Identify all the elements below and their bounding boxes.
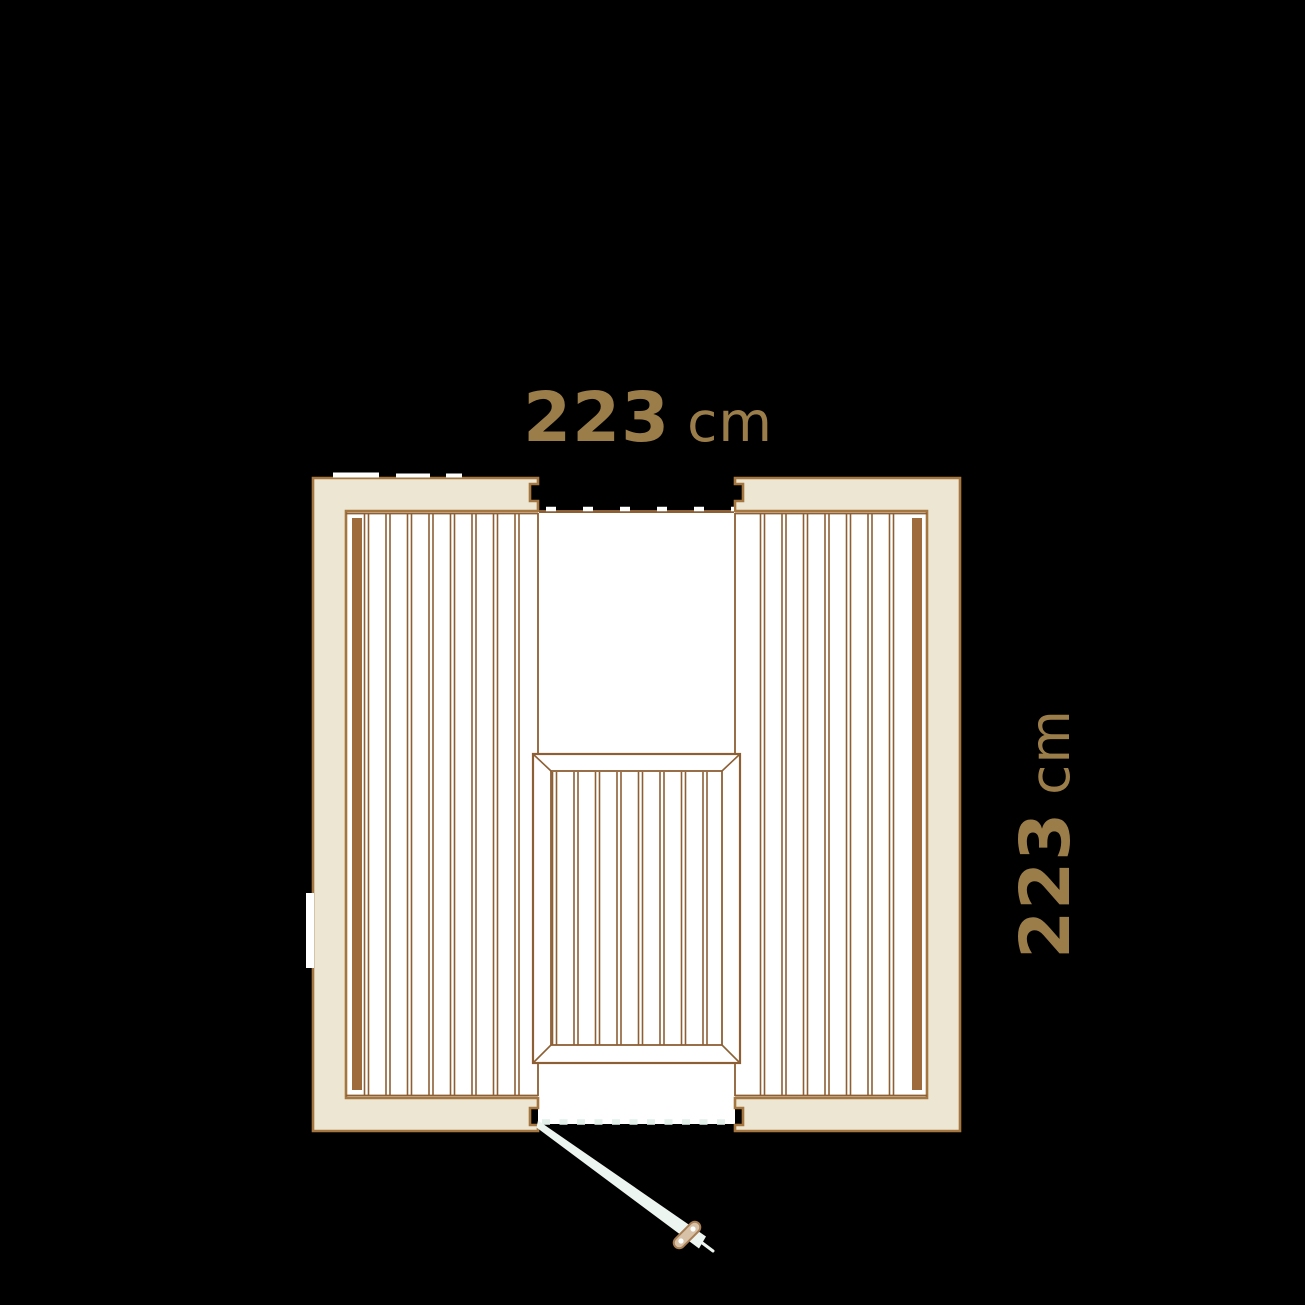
top-edge-mark-1 (333, 473, 379, 478)
right-bench (735, 513, 927, 1096)
left-bench-slats (363, 514, 530, 1095)
right-bench-slats (756, 514, 905, 1095)
center-bench-slats (552, 772, 723, 1045)
door-glass-panel (537, 1121, 707, 1249)
right-bench-edge-bar (912, 518, 922, 1090)
floor-plan (0, 0, 1305, 1305)
center-bench (533, 754, 740, 1063)
door-open-panel (537, 1121, 714, 1252)
top-edge-mark-3 (446, 474, 462, 478)
door-panel-tip (701, 1242, 713, 1251)
diagram-canvas: 223 cm 223 cm (0, 0, 1305, 1305)
left-bench-edge-bar (352, 518, 362, 1090)
left-bench (346, 513, 538, 1096)
top-edge-mark-2 (396, 474, 430, 478)
left-wall-notch-mark (306, 893, 314, 968)
